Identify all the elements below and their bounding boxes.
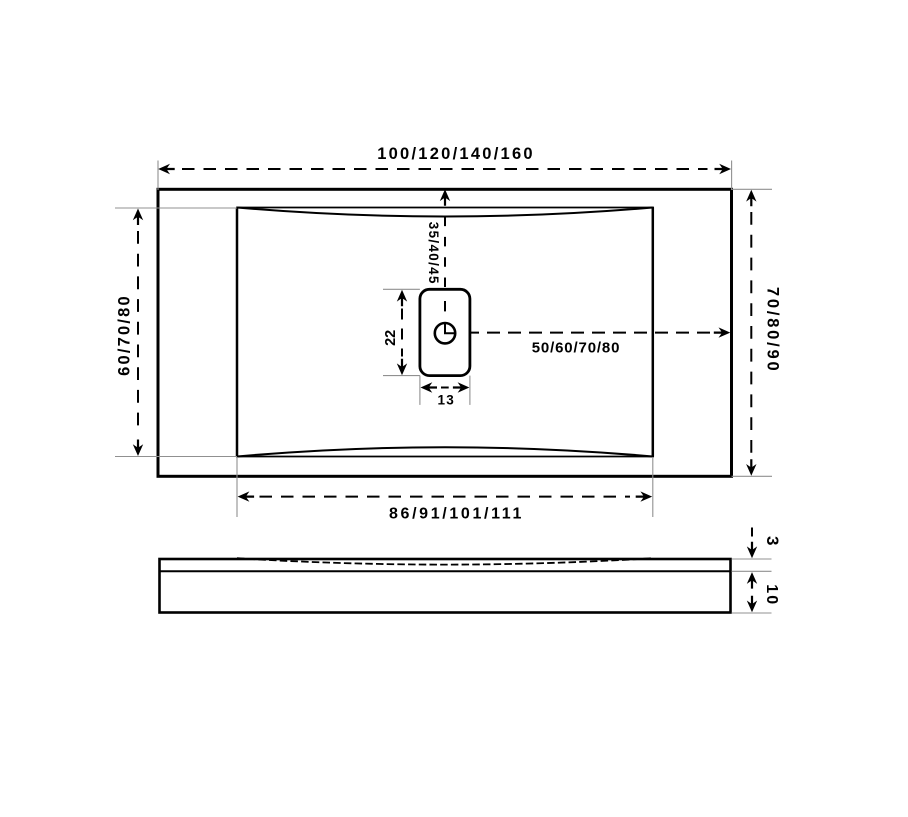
svg-text:86/91/101/111: 86/91/101/111 <box>389 506 524 523</box>
svg-text:70/80/90: 70/80/90 <box>763 287 781 374</box>
svg-text:3: 3 <box>763 536 782 545</box>
svg-text:50/60/70/80: 50/60/70/80 <box>532 340 621 357</box>
svg-text:35/40/45: 35/40/45 <box>426 222 441 285</box>
svg-text:10: 10 <box>763 584 780 606</box>
svg-text:13: 13 <box>437 393 454 408</box>
svg-text:60/70/80: 60/70/80 <box>115 294 133 376</box>
svg-text:22: 22 <box>383 330 399 346</box>
svg-text:100/120/140/160: 100/120/140/160 <box>377 145 535 163</box>
